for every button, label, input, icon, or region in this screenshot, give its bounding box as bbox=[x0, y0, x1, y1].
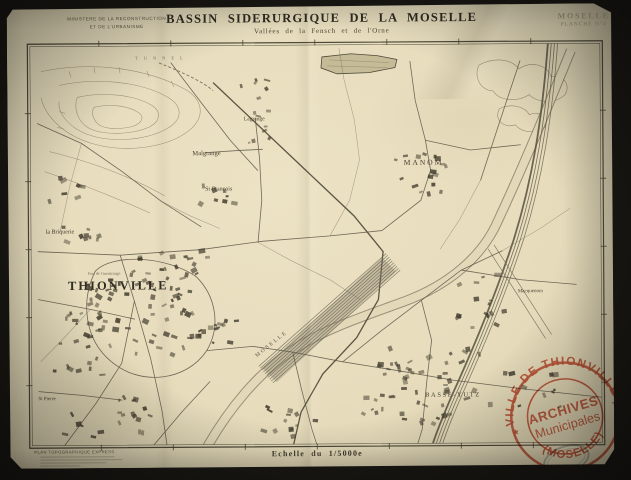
credit-fineprint-line bbox=[40, 462, 106, 464]
scale-label: Echelle du 1/5000e bbox=[272, 449, 363, 459]
urban-blocks bbox=[47, 76, 563, 441]
credit-fineprint-line bbox=[40, 465, 80, 467]
credit-fineprint-line bbox=[40, 459, 122, 461]
contour-hills bbox=[41, 66, 201, 214]
stamp-star-left: ★ bbox=[510, 426, 521, 438]
credit-title: PLAN TOPOGRAPHIQUE EXPRESS bbox=[34, 449, 144, 455]
pond bbox=[321, 53, 397, 73]
map-sheet: MINISTERE DE LA RECONSTRUCTION ET DE L'U… bbox=[7, 3, 615, 469]
photo-background: MINISTERE DE LA RECONSTRUCTION ET DE L'U… bbox=[0, 0, 631, 480]
railway-main bbox=[159, 62, 384, 447]
credit-fineprint-line bbox=[40, 456, 114, 458]
stamp-star-right: ★ bbox=[610, 397, 621, 409]
credit-block: PLAN TOPOGRAPHIQUE EXPRESS bbox=[34, 449, 144, 467]
